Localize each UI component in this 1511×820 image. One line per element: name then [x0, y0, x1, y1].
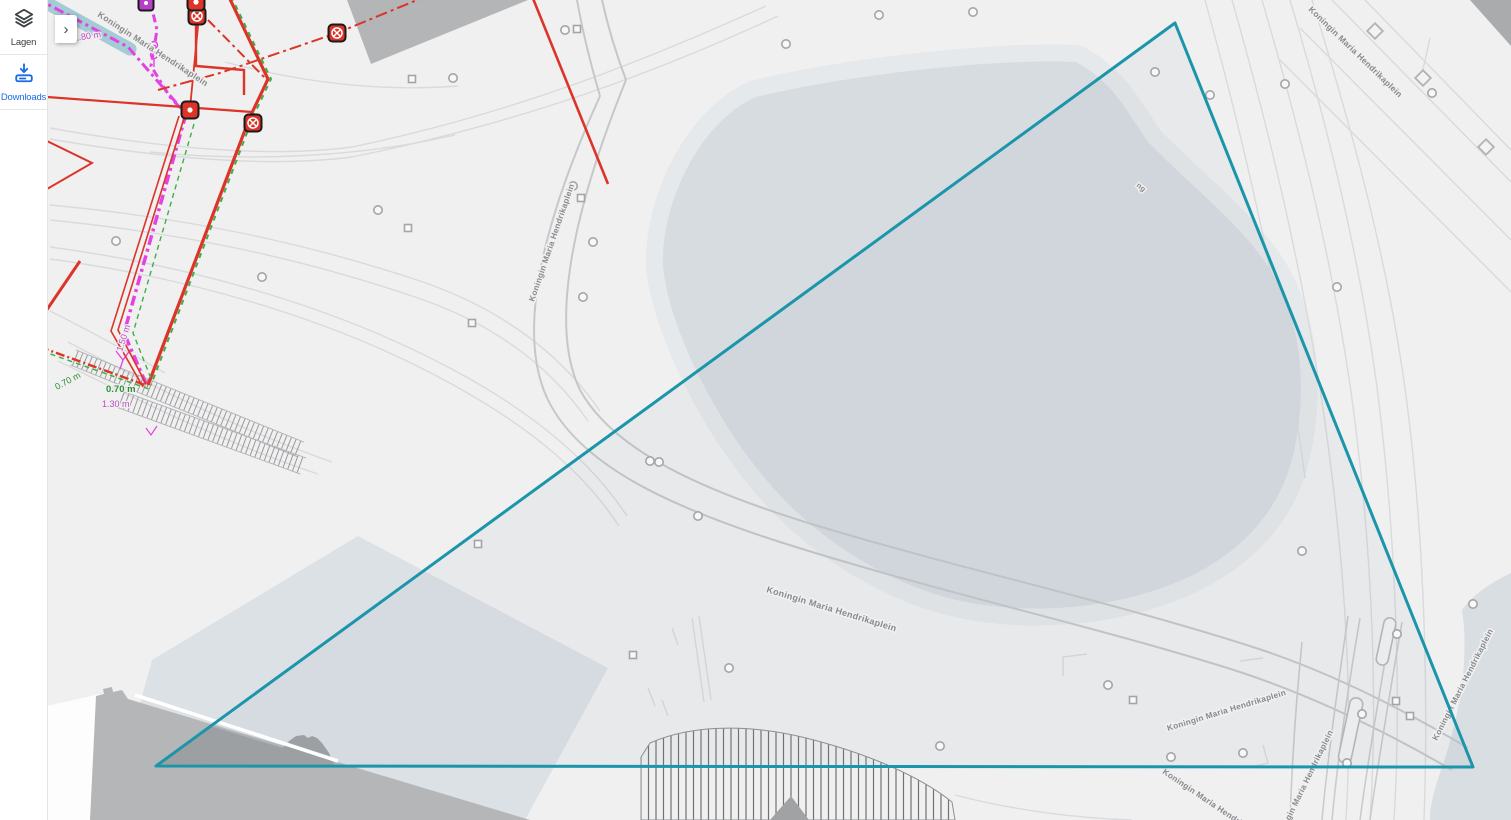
map-marker-circle	[1298, 547, 1306, 555]
map-marker-circle	[561, 26, 569, 34]
utility-marker-dot	[188, 0, 205, 11]
map-marker-circle	[646, 457, 654, 465]
map-marker-circle	[1393, 630, 1401, 638]
sidebar-item-layers-label: Lagen	[11, 37, 36, 48]
download-icon	[13, 62, 35, 89]
map-marker-circle	[374, 206, 382, 214]
map-marker-circle	[258, 273, 266, 281]
map-marker-circle	[782, 40, 790, 48]
app-window: { "sidebar": { "items": [ {"id": "lagen"…	[0, 0, 1511, 820]
utility-marker-circle-x	[245, 115, 262, 132]
utility-marker-circle-x	[329, 25, 346, 42]
map-marker-circle	[875, 11, 883, 19]
map-marker-circle	[112, 237, 120, 245]
sidebar-item-downloads[interactable]: Downloads	[0, 55, 47, 110]
map-marker-square	[574, 26, 581, 33]
map-marker-circle	[1469, 600, 1477, 608]
map-marker-circle	[725, 664, 733, 672]
map-marker-circle	[1428, 89, 1436, 97]
map-marker-circle	[1239, 749, 1247, 757]
panel-expand-button[interactable]: ›	[55, 15, 77, 43]
map-marker-square	[1130, 697, 1137, 704]
map-marker-square	[1407, 713, 1414, 720]
map-marker-circle	[969, 8, 977, 16]
map-marker-square	[409, 76, 416, 83]
measurement-label: 0.70 m	[106, 384, 136, 395]
map-marker-square	[405, 225, 412, 232]
map-marker-circle	[1167, 753, 1175, 761]
chevron-right-icon: ›	[64, 21, 69, 38]
map-marker-square	[630, 652, 637, 659]
map-marker-circle	[936, 742, 944, 750]
map-marker-circle	[449, 74, 457, 82]
map-marker-circle	[1151, 68, 1159, 76]
map-marker-circle	[1358, 710, 1366, 718]
map-marker-circle	[694, 512, 702, 520]
utility-marker-dot	[182, 102, 199, 119]
map-svg[interactable]: Koningin Maria HendrikapleinKoningin Mar…	[47, 0, 1511, 820]
sidebar-item-downloads-label: Downloads	[1, 92, 46, 103]
map-marker-square	[1393, 698, 1400, 705]
measurement-label: 1.30 m	[102, 399, 130, 409]
left-sidebar: Lagen Downloads	[0, 0, 48, 820]
map-marker-circle	[1104, 681, 1112, 689]
map-marker-circle	[589, 238, 597, 246]
map-marker-circle	[655, 458, 663, 466]
map-marker-square	[578, 195, 585, 202]
map-marker-circle	[1333, 283, 1341, 291]
map-marker-circle	[1206, 91, 1214, 99]
map-canvas[interactable]: Koningin Maria HendrikapleinKoningin Mar…	[47, 0, 1511, 820]
utility-marker-purple	[139, 0, 154, 11]
map-marker-square	[469, 320, 476, 327]
map-marker-square	[475, 541, 482, 548]
map-marker-circle	[1281, 80, 1289, 88]
layers-icon	[13, 7, 35, 34]
map-marker-circle	[579, 293, 587, 301]
sidebar-item-layers[interactable]: Lagen	[0, 0, 47, 55]
